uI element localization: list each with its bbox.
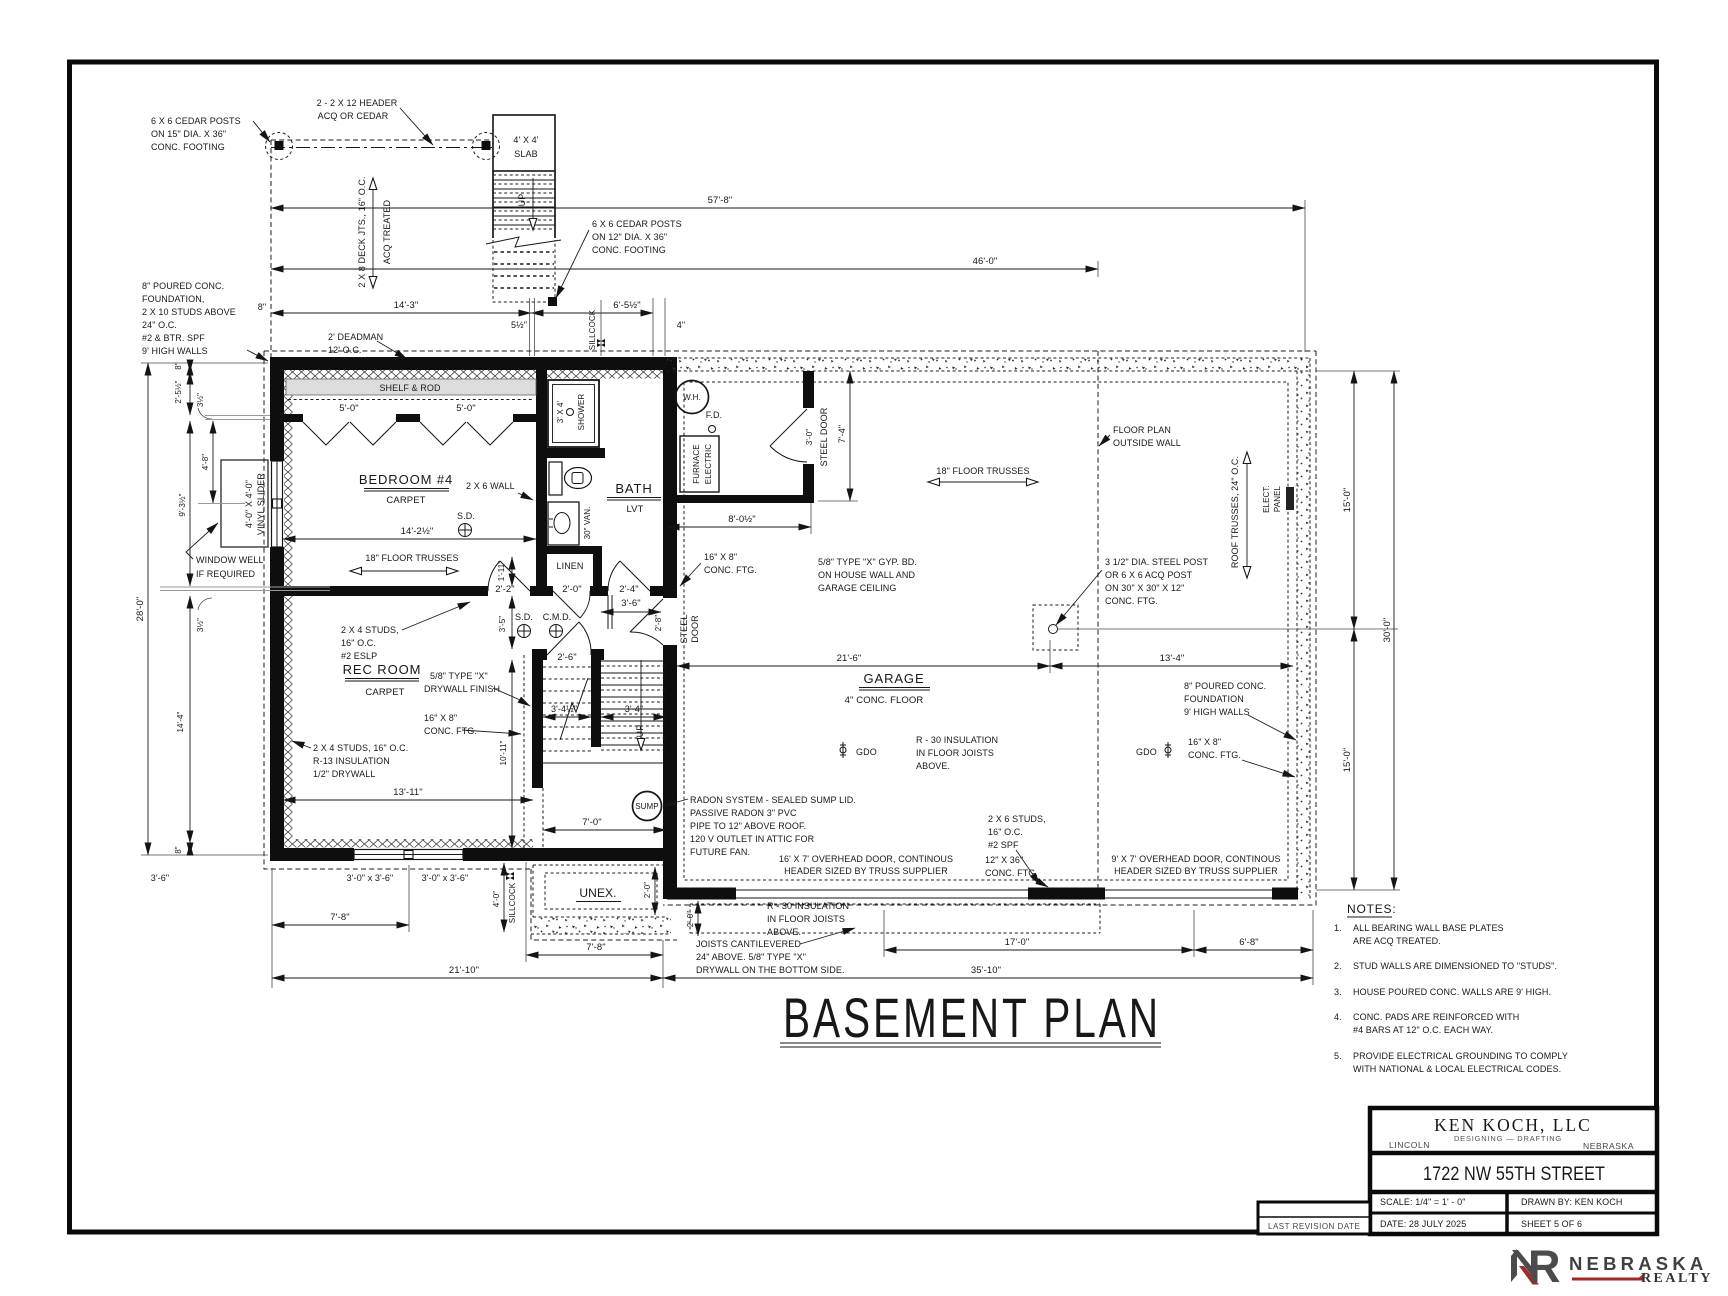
svg-text:UNEX.: UNEX. — [579, 886, 616, 900]
svg-text:24" O.C.: 24" O.C. — [142, 320, 177, 330]
svg-text:F.D.: F.D. — [706, 410, 722, 420]
svg-text:SILLCOCK: SILLCOCK — [508, 882, 517, 923]
svg-text:21'-6": 21'-6" — [837, 653, 862, 664]
svg-text:NOTES:: NOTES: — [1347, 902, 1396, 916]
svg-text:28'-0": 28'-0" — [135, 597, 146, 622]
svg-text:SUMP: SUMP — [635, 802, 659, 811]
svg-text:LINCOLN: LINCOLN — [1389, 1140, 1430, 1150]
svg-text:JOISTS CANTILEVERED: JOISTS CANTILEVERED — [696, 939, 801, 949]
svg-text:NEBRASKA: NEBRASKA — [1583, 1141, 1634, 1151]
svg-text:7'-4": 7'-4" — [837, 425, 847, 443]
svg-text:R - 30 INSULATION: R - 30 INSULATION — [767, 901, 849, 911]
svg-text:4.: 4. — [1334, 1012, 1342, 1022]
svg-text:HEADER SIZED BY TRUSS SUPPLIER: HEADER SIZED BY TRUSS SUPPLIER — [784, 866, 948, 876]
svg-text:15'-0": 15'-0" — [1342, 488, 1353, 513]
svg-text:CARPET: CARPET — [365, 687, 404, 698]
svg-text:CONC. FTG.: CONC. FTG. — [985, 868, 1038, 878]
svg-text:9'-3½": 9'-3½" — [178, 493, 187, 516]
svg-text:CONC. FTG.: CONC. FTG. — [704, 565, 757, 575]
svg-text:16" X 8": 16" X 8" — [424, 713, 457, 723]
svg-text:CONC. PADS ARE REINFORCED WITH: CONC. PADS ARE REINFORCED WITH — [1353, 1012, 1519, 1022]
svg-text:BEDROOM #4: BEDROOM #4 — [359, 472, 453, 487]
svg-text:5/8" TYPE "X": 5/8" TYPE "X" — [430, 671, 488, 681]
svg-text:2'-0": 2'-0" — [643, 882, 652, 898]
svg-text:CONC. FTG.: CONC. FTG. — [424, 726, 477, 736]
svg-text:C.M.D.: C.M.D. — [543, 612, 572, 622]
svg-text:R: R — [1528, 1241, 1561, 1292]
svg-text:5½": 5½" — [511, 320, 527, 330]
svg-text:STEEL DOOR: STEEL DOOR — [819, 407, 829, 466]
svg-text:30'-0": 30'-0" — [1382, 618, 1393, 643]
svg-text:6'-5½": 6'-5½" — [613, 300, 640, 311]
svg-text:SHEET 5 OF 6: SHEET 5 OF 6 — [1521, 1219, 1582, 1229]
svg-text:8": 8" — [258, 302, 266, 312]
svg-text:ROOF TRUSSES, 24" O.C.: ROOF TRUSSES, 24" O.C. — [1230, 456, 1240, 568]
svg-text:GDO: GDO — [1136, 747, 1157, 757]
svg-text:3' X 4': 3' X 4' — [556, 400, 565, 423]
svg-text:GARAGE: GARAGE — [863, 671, 924, 686]
svg-text:CONC. FTG.: CONC. FTG. — [1188, 750, 1241, 760]
svg-text:#2 & BTR. SPF: #2 & BTR. SPF — [142, 333, 205, 343]
svg-text:2' DEADMAN: 2' DEADMAN — [328, 332, 383, 342]
svg-text:DRYWALL FINISH: DRYWALL FINISH — [424, 684, 500, 694]
svg-text:14'-2½": 14'-2½" — [401, 526, 434, 537]
svg-text:2.: 2. — [1334, 961, 1342, 971]
svg-text:3'-4": 3'-4" — [625, 704, 643, 714]
svg-text:ON HOUSE WALL AND: ON HOUSE WALL AND — [818, 570, 915, 580]
svg-text:57'-8": 57'-8" — [708, 195, 733, 206]
svg-text:2 X 4 STUDS,: 2 X 4 STUDS, — [341, 625, 399, 635]
svg-text:UP: UP — [517, 194, 527, 207]
svg-text:#2 ESLP: #2 ESLP — [341, 651, 377, 661]
svg-text:3 1/2" DIA. STEEL POST: 3 1/2" DIA. STEEL POST — [1105, 557, 1209, 567]
svg-text:IN FLOOR JOISTS: IN FLOOR JOISTS — [916, 748, 994, 758]
svg-text:CONC. FOOTING: CONC. FOOTING — [592, 245, 666, 255]
svg-text:3½": 3½" — [196, 618, 205, 632]
svg-text:5/8" TYPE "X" GYP. BD.: 5/8" TYPE "X" GYP. BD. — [818, 557, 917, 567]
svg-text:1722 NW 55TH STREET: 1722 NW 55TH STREET — [1423, 1164, 1605, 1185]
svg-text:16" O.C.: 16" O.C. — [341, 638, 376, 648]
svg-text:8'-0½": 8'-0½" — [728, 514, 755, 525]
svg-text:15'-0": 15'-0" — [1342, 748, 1353, 773]
svg-text:2 X 6 WALL: 2 X 6 WALL — [466, 481, 515, 491]
svg-text:16" X 8": 16" X 8" — [1188, 737, 1221, 747]
svg-text:#2 SPF: #2 SPF — [988, 840, 1019, 850]
svg-text:DRAWN BY: KEN KOCH: DRAWN BY: KEN KOCH — [1521, 1197, 1622, 1207]
svg-text:3'-0" x 3'-6": 3'-0" x 3'-6" — [422, 873, 469, 883]
svg-text:ELECTRIC: ELECTRIC — [704, 444, 713, 484]
svg-text:IN FLOOR JOISTS: IN FLOOR JOISTS — [767, 914, 845, 924]
svg-text:4": 4" — [677, 320, 685, 330]
svg-text:5.: 5. — [1334, 1051, 1342, 1061]
svg-text:2'-0": 2'-0" — [562, 584, 581, 595]
svg-text:3'-6": 3'-6" — [151, 873, 169, 883]
svg-text:2 X 8 DECK JTS., 16" O.C.: 2 X 8 DECK JTS., 16" O.C. — [357, 176, 367, 287]
svg-text:13'-11": 13'-11" — [393, 787, 422, 798]
svg-text:2'-5½": 2'-5½" — [174, 380, 183, 403]
svg-text:FURNACE: FURNACE — [692, 444, 701, 483]
svg-text:PROVIDE ELECTRICAL GROUNDING T: PROVIDE ELECTRICAL GROUNDING TO COMPLY — [1353, 1051, 1568, 1061]
svg-text:LAST REVISION DATE: LAST REVISION DATE — [1268, 1222, 1360, 1231]
svg-text:2 X 6 STUDS,: 2 X 6 STUDS, — [988, 814, 1046, 824]
svg-text:3'-4½": 3'-4½" — [551, 704, 577, 714]
svg-text:ON 12" DIA. X 36": ON 12" DIA. X 36" — [592, 232, 667, 242]
svg-text:2'-8": 2'-8" — [654, 615, 663, 631]
svg-text:ON 15" DIA. X 36": ON 15" DIA. X 36" — [151, 129, 226, 139]
svg-text:3'-5": 3'-5" — [498, 616, 507, 632]
svg-text:8" POURED CONC.: 8" POURED CONC. — [142, 281, 224, 291]
svg-text:DOOR: DOOR — [690, 615, 700, 643]
svg-text:OUTSIDE WALL: OUTSIDE WALL — [1113, 438, 1181, 448]
svg-text:S.D.: S.D. — [457, 511, 475, 521]
svg-text:FOUNDATION,: FOUNDATION, — [142, 294, 204, 304]
svg-text:ALL BEARING WALL BASE PLATES: ALL BEARING WALL BASE PLATES — [1353, 923, 1504, 933]
svg-text:ON 30" X 30" X 12": ON 30" X 30" X 12" — [1105, 583, 1184, 593]
svg-text:ACQ OR CEDAR: ACQ OR CEDAR — [318, 111, 389, 121]
svg-text:SHOWER: SHOWER — [577, 394, 586, 431]
svg-text:17'-0": 17'-0" — [1005, 937, 1030, 948]
svg-text:CONC. FTG.: CONC. FTG. — [1105, 596, 1158, 606]
svg-text:14'-3": 14'-3" — [394, 300, 419, 311]
svg-text:3'-6": 3'-6" — [621, 598, 640, 609]
svg-text:W.H.: W.H. — [683, 393, 701, 402]
svg-text:WITH NATIONAL & LOCAL ELECTRIC: WITH NATIONAL & LOCAL ELECTRICAL CODES. — [1353, 1064, 1561, 1074]
svg-text:OR 6 X 6 ACQ POST: OR 6 X 6 ACQ POST — [1105, 570, 1193, 580]
svg-text:ABOVE.: ABOVE. — [767, 927, 801, 937]
svg-text:CONC. FOOTING: CONC. FOOTING — [151, 142, 225, 152]
svg-text:9' HIGH WALLS: 9' HIGH WALLS — [1184, 707, 1250, 717]
svg-text:3'-0": 3'-0" — [805, 429, 814, 445]
svg-text:HOUSE POURED CONC. WALLS ARE 9: HOUSE POURED CONC. WALLS ARE 9' HIGH. — [1353, 987, 1551, 997]
svg-text:4'-0": 4'-0" — [492, 891, 501, 907]
svg-text:2'-0": 2'-0" — [686, 911, 695, 927]
svg-text:5'-0": 5'-0" — [339, 403, 358, 414]
svg-text:21'-10": 21'-10" — [449, 965, 479, 976]
svg-text:4'-0" X 4'-0": 4'-0" X 4'-0" — [244, 480, 254, 528]
svg-text:LVT: LVT — [626, 504, 643, 515]
svg-text:FLOOR PLAN: FLOOR PLAN — [1113, 425, 1171, 435]
svg-text:FOUNDATION: FOUNDATION — [1184, 694, 1244, 704]
svg-text:IF REQUIRED: IF REQUIRED — [196, 569, 256, 579]
svg-text:16' X 7' OVERHEAD DOOR, CONTIN: 16' X 7' OVERHEAD DOOR, CONTINOUS — [779, 854, 953, 864]
svg-text:ACQ TREATED: ACQ TREATED — [382, 199, 392, 264]
svg-text:HEADER SIZED BY TRUSS SUPPLIER: HEADER SIZED BY TRUSS SUPPLIER — [1114, 866, 1278, 876]
svg-text:8" POURED CONC.: 8" POURED CONC. — [1184, 681, 1266, 691]
svg-text:4'-8": 4'-8" — [201, 454, 210, 470]
svg-text:18" FLOOR TRUSSES: 18" FLOOR TRUSSES — [365, 553, 458, 563]
svg-text:BASEMENT PLAN: BASEMENT PLAN — [783, 986, 1161, 1049]
svg-text:WINDOW WELL: WINDOW WELL — [196, 555, 264, 565]
svg-text:1/2" DRYWALL: 1/2" DRYWALL — [313, 769, 375, 779]
svg-text:SLAB: SLAB — [514, 149, 537, 159]
svg-text:6 X 6 CEDAR POSTS: 6 X 6 CEDAR POSTS — [592, 219, 682, 229]
svg-text:REALTY: REALTY — [1641, 1271, 1713, 1286]
svg-text:SCALE: 1/4" = 1' - 0": SCALE: 1/4" = 1' - 0" — [1380, 1197, 1466, 1207]
svg-text:3'-0" x 3'-6": 3'-0" x 3'-6" — [347, 873, 394, 883]
svg-text:STUD WALLS ARE DIMENSIONED TO: STUD WALLS ARE DIMENSIONED TO "STUDS". — [1353, 961, 1557, 971]
svg-text:DATE: 28 JULY 2025: DATE: 28 JULY 2025 — [1380, 1219, 1466, 1229]
svg-text:DESIGNING — DRAFTING: DESIGNING — DRAFTING — [1454, 1134, 1562, 1143]
svg-text:16" X 8": 16" X 8" — [704, 552, 737, 562]
svg-text:4" CONC. FLOOR: 4" CONC. FLOOR — [845, 695, 924, 706]
svg-text:3.: 3. — [1334, 987, 1342, 997]
svg-text:24" ABOVE. 5/8" TYPE "X": 24" ABOVE. 5/8" TYPE "X" — [696, 952, 806, 962]
svg-text:7'-8": 7'-8" — [330, 912, 349, 923]
svg-text:2 X 10 STUDS ABOVE: 2 X 10 STUDS ABOVE — [142, 307, 236, 317]
svg-text:7'-0": 7'-0" — [582, 817, 601, 828]
svg-text:PASSIVE RADON 3" PVC: PASSIVE RADON 3" PVC — [690, 808, 797, 818]
svg-text:SILLCOCK: SILLCOCK — [588, 309, 597, 350]
svg-text:S.D.: S.D. — [515, 612, 533, 622]
svg-text:GARAGE CEILING: GARAGE CEILING — [818, 583, 896, 593]
svg-text:13'-4": 13'-4" — [1160, 653, 1185, 664]
svg-text:LINEN: LINEN — [556, 561, 583, 571]
svg-text:RADON SYSTEM - SEALED SUMP LID: RADON SYSTEM - SEALED SUMP LID. — [690, 795, 856, 805]
svg-text:ABOVE.: ABOVE. — [916, 761, 950, 771]
svg-text:KEN KOCH, LLC: KEN KOCH, LLC — [1434, 1115, 1592, 1135]
svg-text:FUTURE FAN.: FUTURE FAN. — [690, 847, 750, 857]
svg-text:R-13 INSULATION: R-13 INSULATION — [313, 756, 390, 766]
svg-text:14'-4": 14'-4" — [176, 711, 185, 732]
svg-text:6 X 6 CEDAR POSTS: 6 X 6 CEDAR POSTS — [151, 116, 241, 126]
svg-text:12" X 36": 12" X 36" — [985, 855, 1023, 865]
svg-text:PIPE TO 12" ABOVE ROOF.: PIPE TO 12" ABOVE ROOF. — [690, 821, 806, 831]
svg-text:VINYL SLIDER: VINYL SLIDER — [256, 473, 266, 535]
svg-text:PANEL: PANEL — [1273, 485, 1282, 512]
svg-text:1'-11": 1'-11" — [497, 561, 506, 581]
svg-text:120 V OUTLET IN ATTIC FOR: 120 V OUTLET IN ATTIC FOR — [690, 834, 815, 844]
svg-text:7'-8": 7'-8" — [586, 942, 605, 953]
svg-text:5'-0": 5'-0" — [456, 403, 475, 414]
svg-text:#4 BARS AT 12" O.C. EACH WAY.: #4 BARS AT 12" O.C. EACH WAY. — [1353, 1025, 1493, 1035]
svg-text:ELECT.: ELECT. — [1262, 485, 1271, 513]
svg-text:CARPET: CARPET — [386, 495, 425, 506]
svg-text:BATH: BATH — [615, 481, 652, 496]
svg-text:1.: 1. — [1334, 923, 1342, 933]
svg-text:9' HIGH WALLS: 9' HIGH WALLS — [142, 346, 208, 356]
svg-text:2'-4": 2'-4" — [619, 584, 638, 595]
svg-text:30" VAN.: 30" VAN. — [583, 507, 592, 540]
svg-text:ARE ACQ TREATED.: ARE ACQ TREATED. — [1353, 936, 1441, 946]
svg-text:GDO: GDO — [856, 747, 877, 757]
svg-text:35'-10": 35'-10" — [971, 965, 1001, 976]
svg-text:3½": 3½" — [196, 393, 205, 407]
svg-text:9' X 7' OVERHEAD DOOR, CONTINO: 9' X 7' OVERHEAD DOOR, CONTINOUS — [1111, 854, 1280, 864]
svg-text:16" O.C.: 16" O.C. — [988, 827, 1023, 837]
svg-text:4' X 4': 4' X 4' — [513, 135, 538, 145]
svg-text:2'-6": 2'-6" — [557, 652, 576, 663]
svg-text:DRYWALL ON THE BOTTOM SIDE.: DRYWALL ON THE BOTTOM SIDE. — [696, 965, 845, 975]
svg-text:6'-8": 6'-8" — [1239, 937, 1258, 948]
svg-text:8": 8" — [174, 362, 183, 370]
svg-text:18" FLOOR TRUSSES: 18" FLOOR TRUSSES — [936, 466, 1029, 476]
svg-text:REC ROOM: REC ROOM — [343, 662, 422, 677]
svg-text:UP: UP — [635, 725, 645, 738]
svg-text:SHELF & ROD: SHELF & ROD — [379, 383, 441, 393]
svg-text:2 - 2 X 12 HEADER: 2 - 2 X 12 HEADER — [317, 98, 398, 108]
svg-text:12' O.C.: 12' O.C. — [328, 345, 362, 355]
svg-text:R - 30 INSULATION: R - 30 INSULATION — [916, 735, 998, 745]
svg-text:2 X 4 STUDS, 16" O.C.: 2 X 4 STUDS, 16" O.C. — [313, 743, 408, 753]
svg-text:8": 8" — [174, 846, 183, 854]
svg-text:46'-0": 46'-0" — [973, 256, 998, 267]
svg-text:10'-11": 10'-11" — [499, 740, 508, 765]
